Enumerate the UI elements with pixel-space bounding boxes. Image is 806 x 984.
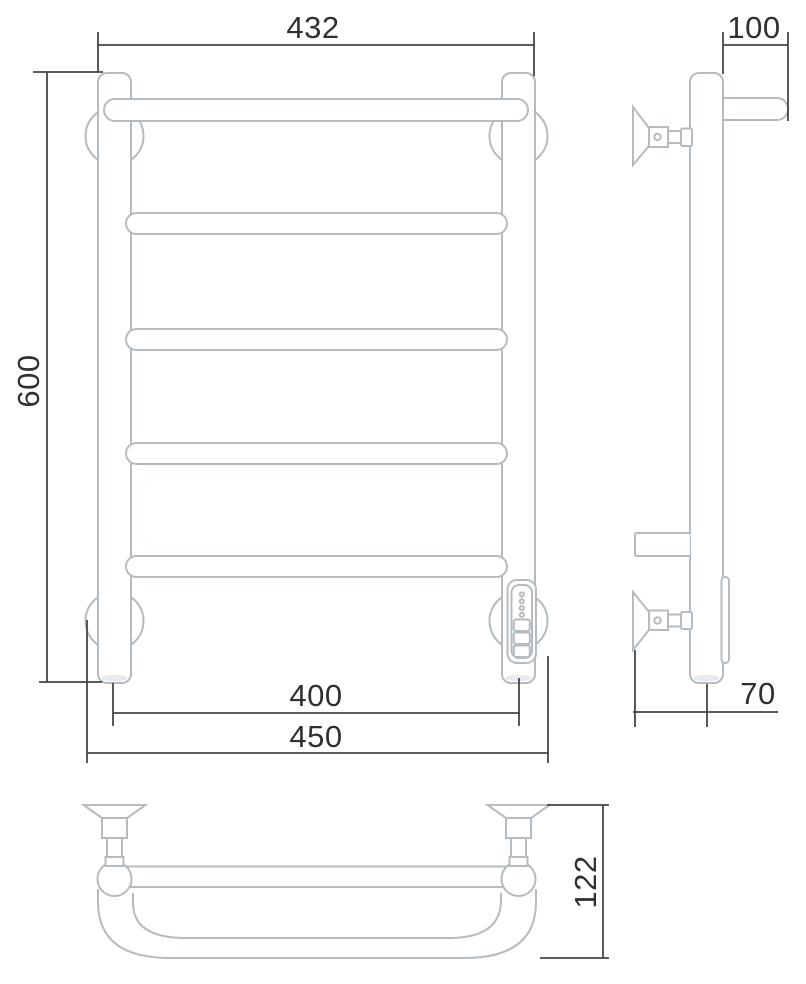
dimension-122: 122: [540, 805, 609, 958]
side-control-panel-profile: [722, 577, 730, 663]
dimension-label-600: 600: [11, 354, 46, 407]
dimension-label-100: 100: [727, 10, 780, 45]
drawing-canvas: 432 600 400 450 100: [0, 0, 806, 984]
bottom-bracket-left: [84, 805, 146, 866]
bottom-bracket-right: [488, 805, 550, 866]
dimension-label-122: 122: [568, 855, 603, 908]
left-post-end-cap: [102, 675, 128, 681]
control-panel: [508, 580, 537, 663]
dimension-600: 600: [11, 72, 103, 682]
bracket-block: [649, 611, 668, 631]
rung-3: [126, 329, 507, 350]
bracket-block: [506, 818, 531, 838]
straight-rung-plan: [116, 867, 518, 888]
post-section-left: [98, 862, 132, 896]
bracket-cone: [488, 805, 550, 818]
posts: [98, 73, 535, 683]
curved-rung-inner: [133, 893, 501, 938]
left-post: [98, 73, 131, 683]
bracket-rod: [668, 615, 681, 627]
bracket-collar: [510, 857, 528, 866]
rung-2: [126, 213, 507, 234]
curved-rung-outer: [98, 889, 536, 958]
dimension-label-432: 432: [286, 10, 339, 45]
bracket-collar: [106, 857, 124, 866]
side-bracket-bottom: [633, 592, 692, 650]
dimension-label-70: 70: [740, 676, 775, 711]
dimension-label-450: 450: [289, 719, 342, 754]
rungs: [104, 99, 528, 577]
bracket-block: [649, 127, 668, 147]
rung-4: [126, 443, 507, 464]
dimension-432: 432: [98, 10, 534, 76]
side-post-end-cap: [694, 675, 720, 681]
side-post: [690, 73, 723, 683]
rung-5: [126, 556, 507, 577]
post-section-right: [502, 862, 536, 896]
front-view: [86, 73, 548, 683]
bracket-cone: [633, 592, 649, 650]
technical-drawing: 432 600 400 450 100: [0, 0, 806, 984]
bottom-view: [84, 805, 550, 958]
top-rail: [104, 99, 528, 121]
side-bracket-top: [633, 107, 692, 165]
bracket-end-block: [681, 612, 692, 629]
bracket-rod: [107, 838, 122, 857]
bracket-cone: [84, 805, 146, 818]
bracket-end-block: [681, 129, 692, 147]
bracket-block: [102, 818, 127, 838]
side-junction-box: [635, 533, 690, 556]
side-view: [633, 73, 788, 683]
dimension-label-400: 400: [289, 678, 342, 713]
bracket-rod: [668, 131, 681, 143]
bracket-rod: [511, 838, 526, 857]
bracket-cone: [633, 107, 649, 165]
